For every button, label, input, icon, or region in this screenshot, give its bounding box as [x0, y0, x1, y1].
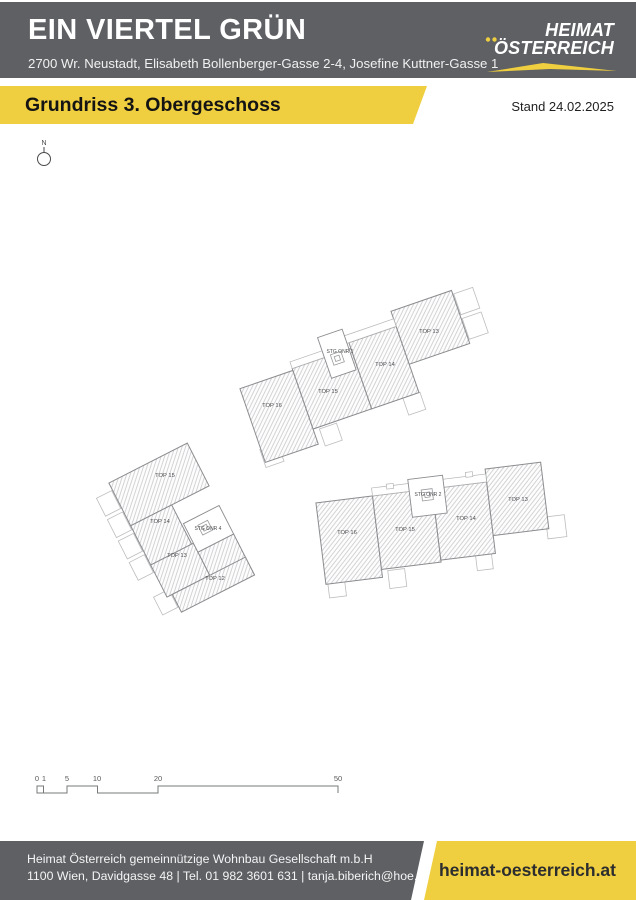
stairwell-label-s4: STG ONR 4 [195, 526, 222, 532]
logo-line1: HEIMAT [545, 20, 616, 40]
building-stiege-4 [93, 443, 255, 623]
scale-bar: 0 1 5 10 20 50 [35, 774, 342, 793]
unit-label-top14-s2: TOP 14 [456, 516, 477, 522]
logo-umlaut-dot [486, 37, 490, 41]
building-stiege-1 [231, 284, 506, 468]
scale-label-5: 5 [65, 774, 69, 783]
unit-label-top13-s1: TOP 13 [419, 329, 439, 335]
unit-label-top13-s2: TOP 13 [508, 497, 528, 503]
floorplan-canvas: HEIMAT ÖSTERREICH N [0, 0, 636, 900]
compass-north-label: N [41, 140, 46, 147]
unit-top16-s2 [316, 496, 383, 584]
unit-label-top13-s4: TOP 13 [167, 553, 187, 559]
scale-label-50: 50 [334, 774, 342, 783]
scale-label-10: 10 [93, 774, 101, 783]
stairwell-label-s1: STG ONR 1 [327, 349, 354, 355]
unit-label-top15-s4: TOP 15 [155, 473, 175, 479]
scale-label-1: 1 [42, 774, 46, 783]
scale-label-0: 0 [35, 774, 39, 783]
unit-label-top14-s1: TOP 14 [375, 362, 396, 368]
scale-label-20: 20 [154, 774, 162, 783]
unit-label-top12-s4: TOP 12 [205, 576, 225, 582]
logo-swoosh [487, 63, 617, 72]
unit-label-top16-s2: TOP 16 [337, 530, 357, 536]
stairwell-label-s2: STG ONR 2 [415, 492, 442, 498]
unit-label-top16-s1: TOP 16 [262, 403, 282, 409]
heimat-oesterreich-logo: HEIMAT ÖSTERREICH [486, 20, 617, 72]
logo-line2: ÖSTERREICH [494, 38, 615, 58]
north-compass-icon: N [38, 140, 51, 166]
unit-label-top14-s4: TOP 14 [150, 519, 171, 525]
unit-label-top15-s1: TOP 15 [318, 389, 338, 395]
unit-label-top15-s2: TOP 15 [395, 527, 415, 533]
